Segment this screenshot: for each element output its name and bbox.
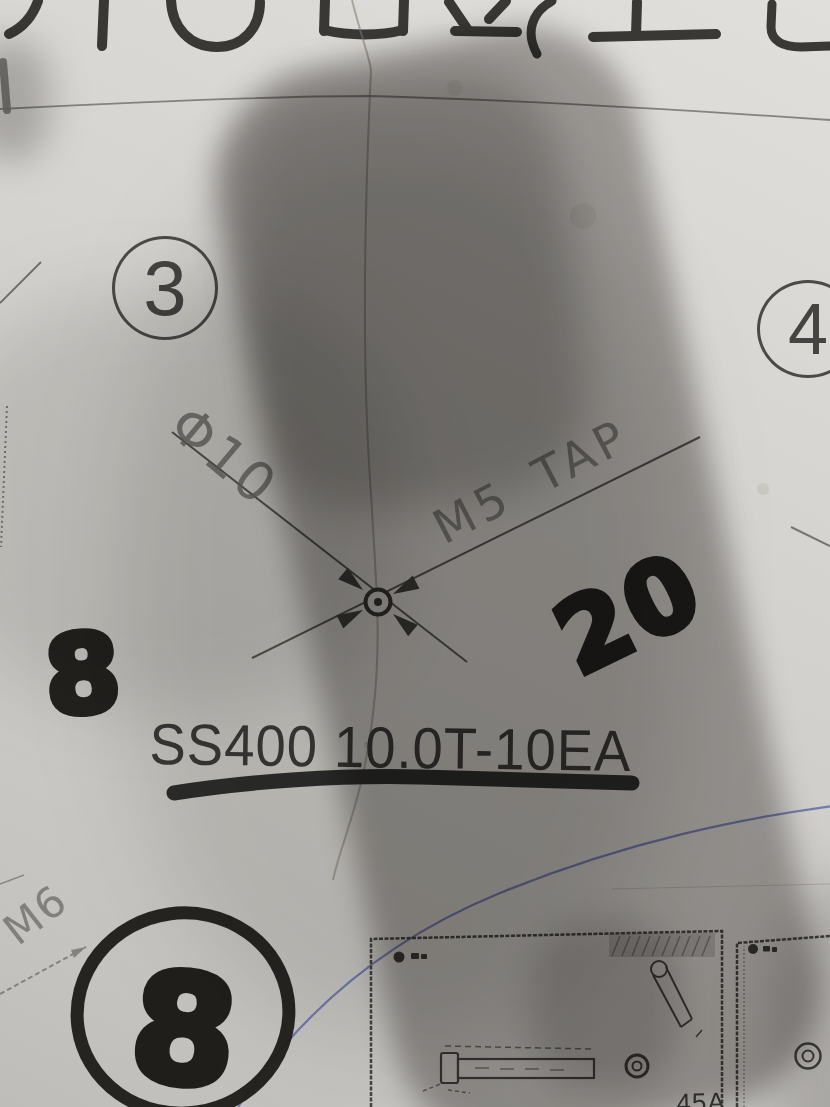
right-edge-leader-fragment	[791, 527, 830, 546]
bolt-side-view	[423, 1046, 594, 1093]
part-box-middle	[371, 931, 722, 1107]
legend-dot-middle	[394, 952, 428, 963]
left-edge-drawing-fragments	[0, 262, 41, 547]
washer-ring-middle	[626, 1055, 648, 1077]
horizontal-rule-line	[0, 96, 830, 120]
washer-ring-right	[796, 1044, 821, 1069]
handwritten-eight-left: 8	[41, 609, 125, 739]
callout-3-number: 3	[143, 243, 186, 334]
drawing-scene: 8 20 8	[0, 0, 830, 1107]
faint-paper-line	[612, 884, 830, 889]
handwritten-twenty: 20	[538, 529, 722, 699]
handwritten-eight-circled: 8	[123, 938, 245, 1107]
photo-of-technical-drawing: 가용접선(보	[0, 0, 830, 1107]
pin-side-view	[651, 961, 702, 1037]
target-center-dot	[374, 598, 382, 606]
part-box-right	[737, 936, 830, 1107]
pipe-size-label-45a: 45A	[676, 1086, 726, 1107]
circled-callout-3: 3	[112, 236, 218, 340]
legend-dot-right	[748, 944, 777, 954]
korean-title-glyphs	[3, 0, 830, 110]
callout-4-number: 4	[788, 288, 828, 370]
material-spec-text: SS400 10.0T-10EA	[149, 710, 632, 784]
